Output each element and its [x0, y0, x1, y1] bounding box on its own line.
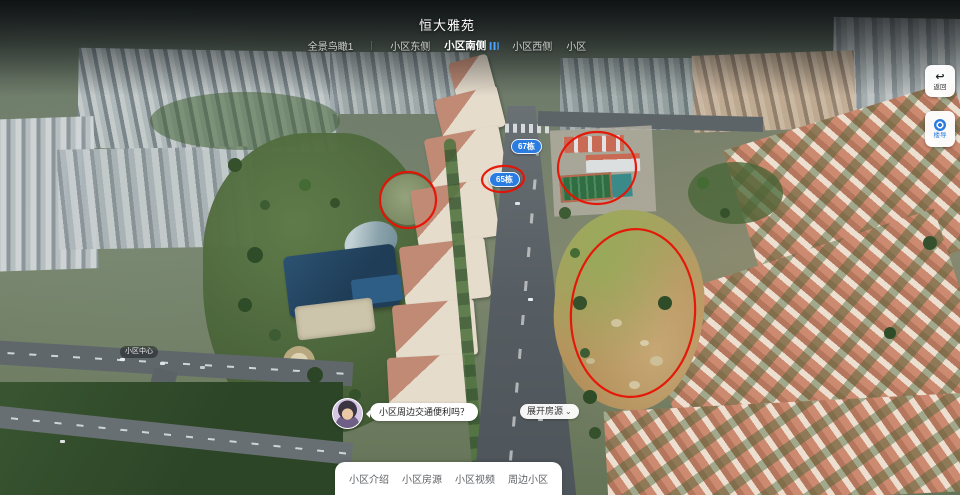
scene-court — [611, 173, 633, 197]
scene-bottom-right-buildings — [604, 392, 960, 495]
tab-label: 全景鸟瞰1 — [308, 38, 354, 53]
tab-separator: ｜ — [367, 39, 376, 52]
road-markings — [506, 107, 543, 495]
tab-label: 小区南侧 — [444, 38, 486, 53]
tab-label: 小区 — [566, 38, 586, 53]
scene-dirt-patches — [640, 340, 649, 346]
scene-building-block — [399, 237, 492, 307]
back-button[interactable]: ↩ 返回 — [925, 65, 955, 97]
nav-community-videos[interactable]: 小区视频 — [455, 471, 495, 486]
compass-target-icon — [934, 119, 946, 131]
building-guide-button[interactable]: 楼导 — [925, 111, 955, 147]
panorama-viewer: 恒大雅苑 全景鸟瞰1 ｜ 小区东侧 小区南侧 小区西侧 小区 ↩ 返回 楼导 6… — [0, 0, 960, 495]
nav-community-intro[interactable]: 小区介绍 — [349, 471, 389, 486]
nav-community-listings[interactable]: 小区房源 — [402, 471, 442, 486]
page-title: 恒大雅苑 — [419, 15, 475, 34]
scene-school-building-2 — [586, 153, 641, 173]
tab-panorama-overview[interactable]: 全景鸟瞰1 — [308, 38, 354, 53]
guide-button-label: 楼导 — [934, 132, 947, 139]
nav-nearby-communities[interactable]: 周边小区 — [508, 471, 548, 486]
scene-right-greenery — [688, 162, 783, 224]
bottom-nav-bar: 小区介绍 小区房源 小区视频 周边小区 — [335, 462, 562, 495]
building-label-65[interactable]: 65栋 — [489, 172, 520, 187]
chat-row: 小区周边交通便利吗？ — [332, 398, 478, 429]
back-button-label: 返回 — [934, 84, 947, 91]
chat-question-bubble[interactable]: 小区周边交通便利吗？ — [370, 403, 478, 421]
scene-tab-bar: 全景鸟瞰1 ｜ 小区东侧 小区南侧 小区西侧 小区 — [308, 38, 587, 53]
return-arrow-icon: ↩ — [935, 72, 944, 83]
chevron-down-icon: ⌄ — [565, 409, 572, 415]
tab-east-side[interactable]: 小区东侧 — [390, 38, 430, 53]
tab-more[interactable]: 小区 — [566, 38, 586, 53]
tab-south-side[interactable]: 小区南侧 — [444, 38, 498, 53]
expand-listings-label: 展开房源 — [527, 407, 563, 416]
scene-sports-field — [559, 172, 613, 203]
tab-label: 小区东侧 — [390, 38, 430, 53]
community-center-label[interactable]: 小区中心 — [120, 346, 158, 358]
tab-west-side[interactable]: 小区西侧 — [512, 38, 552, 53]
playing-indicator-icon — [489, 42, 498, 50]
scene-school-building — [564, 135, 625, 153]
building-label-67[interactable]: 67栋 — [511, 139, 542, 154]
aerial-panorama[interactable] — [0, 0, 960, 495]
expand-listings-button[interactable]: 展开房源 ⌄ — [520, 404, 579, 419]
tab-label: 小区西侧 — [512, 38, 552, 53]
agent-avatar[interactable] — [332, 398, 363, 429]
